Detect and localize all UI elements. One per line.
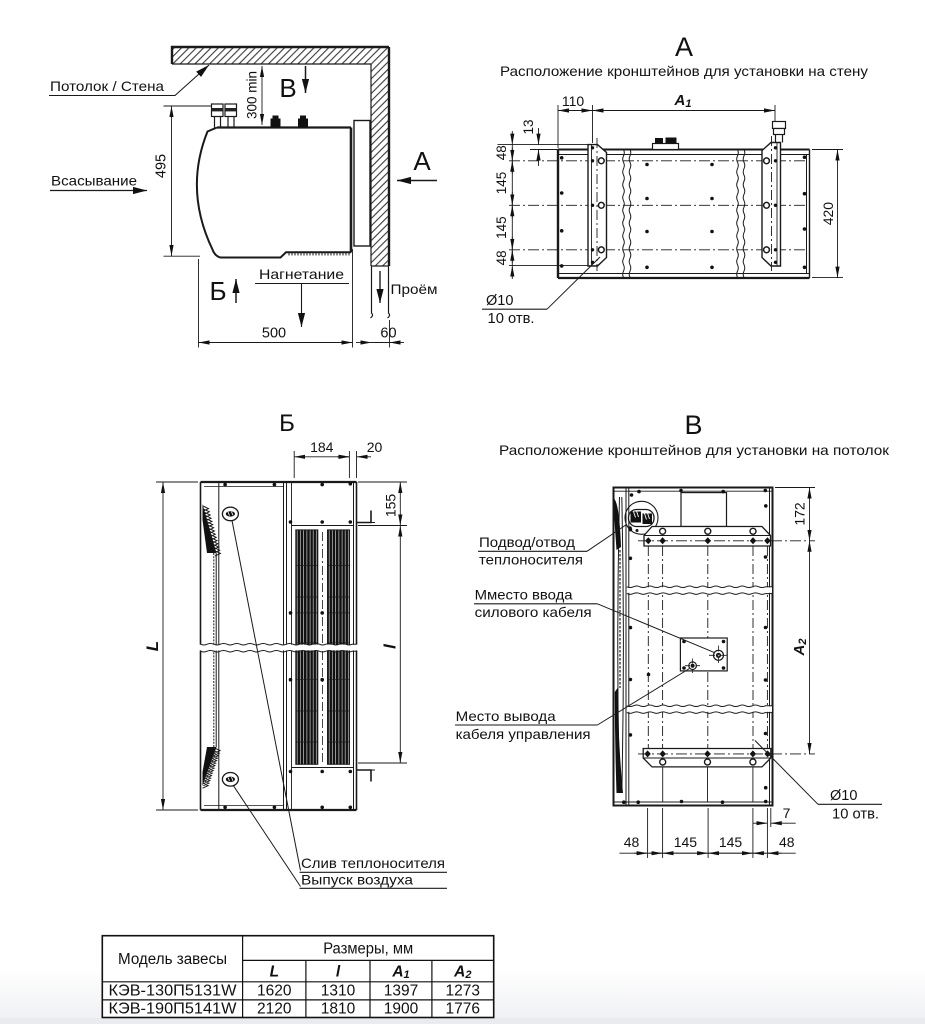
svg-text:48: 48: [494, 145, 509, 160]
svg-text:1620: 1620: [257, 983, 292, 1000]
svg-text:Расположение кронштейнов для у: Расположение кронштейнов для установки н…: [499, 443, 890, 458]
svg-text:Б: Б: [209, 276, 226, 306]
svg-text:КЭВ-130П5131W: КЭВ-130П5131W: [109, 983, 237, 1000]
svg-text:А1: А1: [674, 92, 692, 110]
svg-text:145: 145: [674, 834, 698, 850]
svg-text:60: 60: [380, 326, 396, 342]
svg-text:7: 7: [783, 805, 791, 821]
svg-text:13: 13: [521, 119, 536, 134]
svg-text:L: L: [143, 641, 162, 651]
svg-text:Потолок / Стена: Потолок / Стена: [50, 78, 164, 94]
svg-text:184: 184: [310, 439, 334, 455]
svg-text:495: 495: [154, 154, 170, 178]
svg-text:10 отв.: 10 отв.: [488, 311, 535, 327]
svg-text:420: 420: [820, 202, 836, 226]
svg-text:Проём: Проём: [391, 281, 438, 297]
svg-text:L: L: [270, 964, 279, 981]
svg-text:20: 20: [367, 439, 383, 455]
svg-text:Размеры, мм: Размеры, мм: [323, 941, 413, 958]
svg-text:Нагнетание: Нагнетание: [259, 266, 344, 282]
svg-text:155: 155: [383, 494, 399, 518]
svg-text:А: А: [413, 146, 431, 176]
svg-text:1397: 1397: [384, 983, 418, 1000]
svg-text:l: l: [336, 964, 341, 981]
svg-text:145: 145: [494, 216, 509, 239]
svg-text:В: В: [684, 410, 702, 440]
svg-text:Модель завесы: Модель завесы: [118, 951, 227, 968]
svg-text:48: 48: [494, 250, 509, 265]
svg-text:1900: 1900: [384, 1000, 419, 1017]
svg-text:А: А: [675, 32, 693, 62]
svg-text:Б: Б: [279, 410, 295, 437]
svg-text:Слив теплоносителя: Слив теплоносителя: [301, 855, 445, 871]
svg-text:Всасывание: Всасывание: [51, 173, 137, 189]
svg-text:В: В: [279, 73, 296, 103]
svg-text:48: 48: [624, 834, 640, 850]
svg-text:Ø10: Ø10: [486, 293, 513, 309]
svg-text:145: 145: [719, 834, 743, 850]
svg-text:1776: 1776: [446, 1000, 480, 1017]
svg-text:l: l: [381, 643, 400, 649]
svg-text:48: 48: [779, 834, 795, 850]
svg-text:2120: 2120: [257, 1000, 292, 1017]
svg-text:Ø10: Ø10: [830, 788, 857, 804]
svg-text:Подвод/отвод: Подвод/отвод: [479, 534, 575, 550]
svg-text:кабеля управления: кабеля управления: [456, 726, 591, 742]
svg-text:500: 500: [262, 326, 286, 342]
svg-text:А2: А2: [791, 639, 809, 657]
svg-text:Расположение кронштейнов для у: Расположение кронштейнов для установки н…: [500, 64, 868, 79]
svg-text:силового кабеля: силового кабеля: [475, 604, 592, 620]
svg-text:1310: 1310: [321, 983, 356, 1000]
svg-text:10 отв.: 10 отв.: [832, 807, 879, 823]
svg-text:300 min: 300 min: [245, 71, 260, 119]
svg-text:172: 172: [792, 502, 808, 526]
svg-text:110: 110: [562, 93, 585, 109]
svg-text:КЭВ-190П5141W: КЭВ-190П5141W: [109, 1000, 237, 1017]
svg-text:теплоносителя: теплоносителя: [479, 552, 583, 568]
svg-text:Выпуск воздуха: Выпуск воздуха: [301, 872, 413, 888]
svg-text:145: 145: [494, 172, 509, 195]
svg-text:1810: 1810: [321, 1000, 356, 1017]
svg-text:Место вывода: Место вывода: [456, 708, 556, 724]
svg-text:Мместо ввода: Мместо ввода: [475, 587, 573, 603]
svg-text:1273: 1273: [446, 983, 480, 1000]
